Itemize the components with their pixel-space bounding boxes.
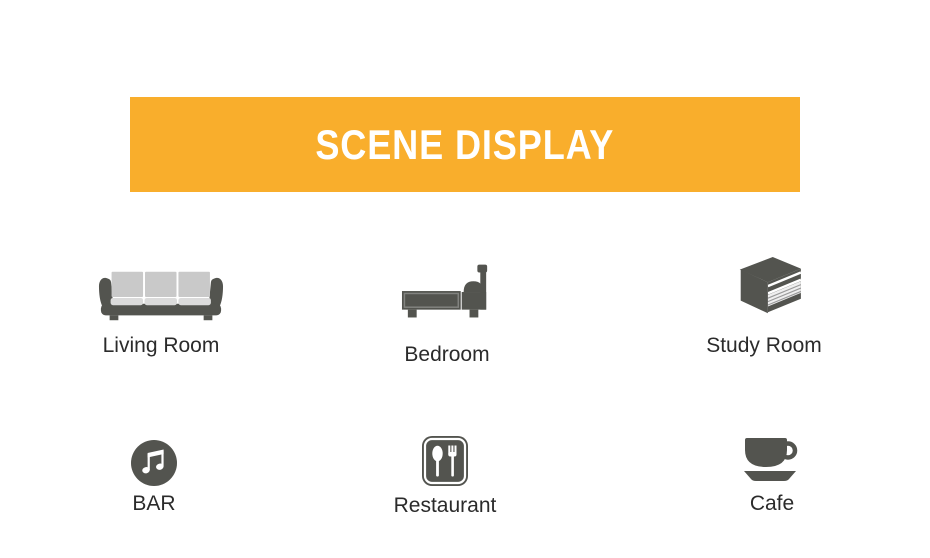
sofa-icon <box>98 256 224 322</box>
coffee-cup-icon <box>743 430 801 486</box>
books-icon <box>725 256 803 322</box>
scene-tile-bedroom: Bedroom <box>337 256 557 367</box>
scene-tile-cafe: Cafe <box>662 430 882 516</box>
section-banner: SCENE DISPLAY <box>130 97 800 192</box>
scene-label: Bedroom <box>404 343 489 367</box>
bed-icon <box>401 256 494 322</box>
scene-tile-restaurant: Restaurant <box>335 430 555 518</box>
scene-label: Living Room <box>103 334 220 358</box>
scene-label: Restaurant <box>394 494 497 518</box>
scene-label: Study Room <box>706 334 822 358</box>
scene-tile-study-room: Study Room <box>654 256 874 358</box>
scene-label: BAR <box>132 492 175 516</box>
section-title: SCENE DISPLAY <box>316 121 615 169</box>
scene-display-page: SCENE DISPLAY Living Room <box>0 0 930 558</box>
fork-spoon-icon <box>422 430 468 486</box>
scene-tile-living-room: Living Room <box>51 256 271 358</box>
music-note-icon <box>131 430 177 486</box>
scene-tile-bar: BAR <box>44 430 264 516</box>
scene-label: Cafe <box>750 492 794 516</box>
